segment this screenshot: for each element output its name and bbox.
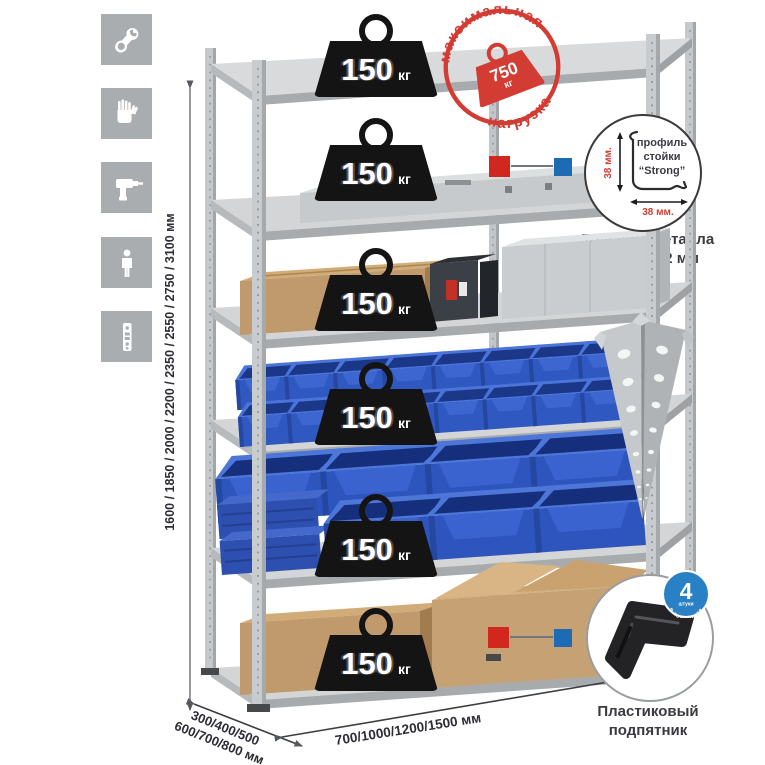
load-unit: кг xyxy=(398,547,411,563)
shelf-load-badge-4: 150кг xyxy=(314,362,438,445)
load-value: 150 xyxy=(341,402,393,433)
load-unit: кг xyxy=(398,67,411,83)
shelf-load-badge-6: 150кг xyxy=(314,608,438,691)
load-unit: кг xyxy=(398,171,411,187)
profile-marker-blue-top xyxy=(554,158,572,176)
angle-post-image xyxy=(592,306,698,528)
load-value: 150 xyxy=(341,288,393,319)
load-value: 150 xyxy=(341,54,393,85)
shelf-load-badge-5: 150кг xyxy=(314,494,438,577)
profile-label-line2: стойки xyxy=(643,151,680,163)
load-value: 150 xyxy=(341,158,393,189)
profile-dim-horizontal: 38 мм. xyxy=(642,207,674,218)
stamp-unit: кг xyxy=(503,79,515,91)
profile-label-line3: “Strong” xyxy=(639,165,685,177)
load-unit: кг xyxy=(398,415,411,431)
badge-sub-label: штуки xyxy=(678,602,693,608)
profile-dim-vertical: 38 мм. xyxy=(603,147,614,179)
infographic-canvas: 150кг 150кг 150кг 150кг 150кг 150кг макс… xyxy=(0,0,765,765)
post-profile-drawing: 38 мм. 38 мм. профиль стойки “Strong” xyxy=(586,116,700,230)
dark-cases xyxy=(430,254,498,322)
shelf-load-badge-2: 150кг xyxy=(314,118,438,201)
shelf-load-badge-1: 150кг xyxy=(314,14,438,97)
profile-label-line1: профиль xyxy=(637,137,687,149)
foot-marker-red-bottom xyxy=(488,627,509,648)
quantity-badge: 4 штуки в комплекте xyxy=(662,570,710,618)
shelf-load-badge-3: 150кг xyxy=(314,248,438,331)
load-value: 150 xyxy=(341,534,393,565)
load-value: 150 xyxy=(341,648,393,679)
load-unit: кг xyxy=(398,301,411,317)
foot-marker-blue-bottom xyxy=(554,629,572,647)
badge-number: 4 xyxy=(680,578,693,604)
post-profile-detail-circle: 38 мм. 38 мм. профиль стойки “Strong” xyxy=(584,114,702,232)
load-unit: кг xyxy=(398,661,411,677)
profile-marker-red-top xyxy=(489,156,510,177)
